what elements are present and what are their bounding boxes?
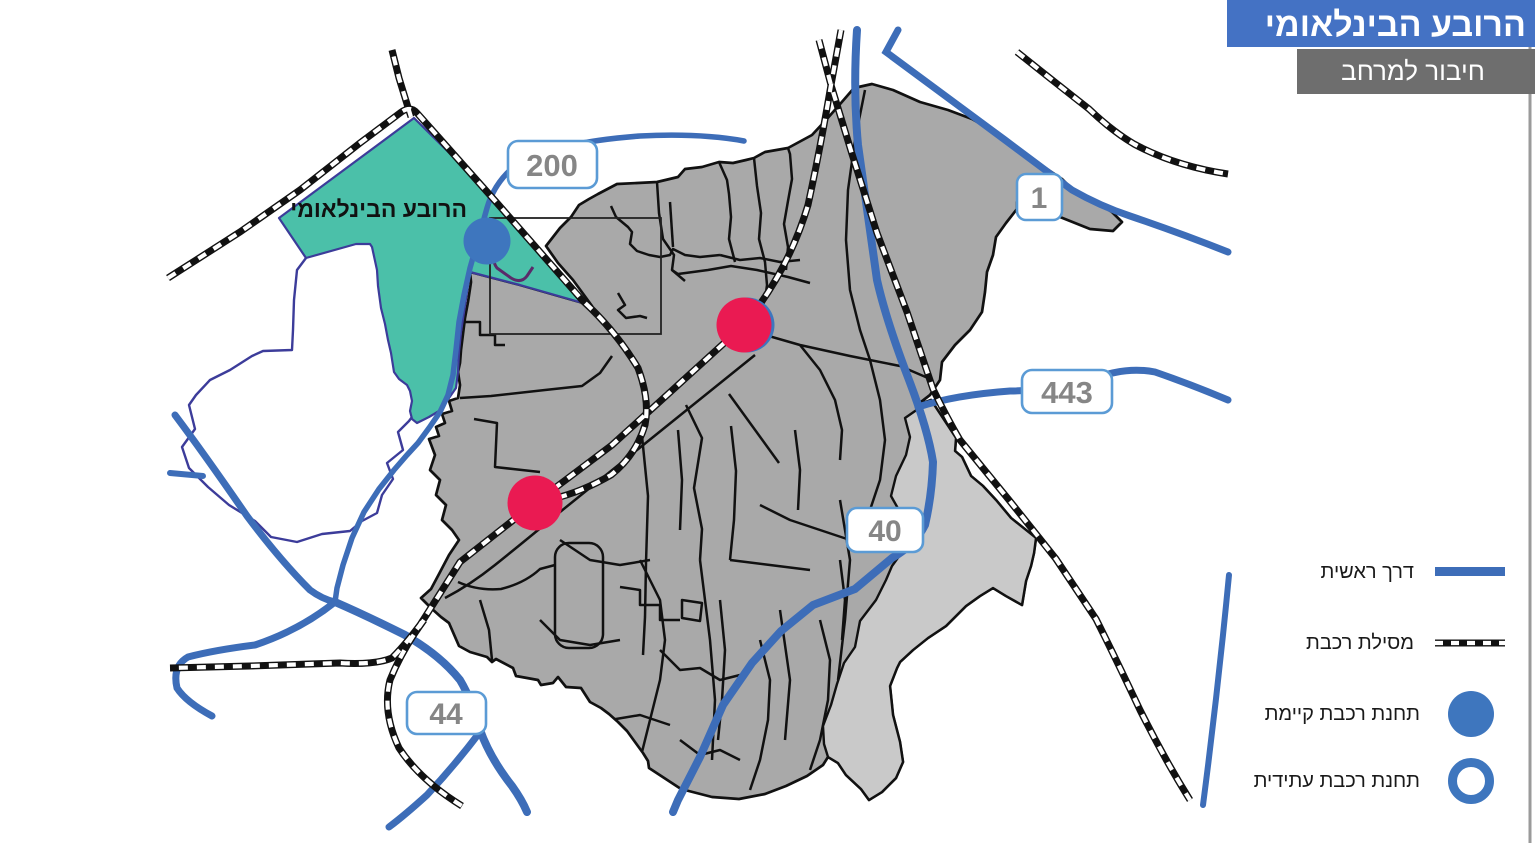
svg-text:דרך ראשית: דרך ראשית: [1321, 561, 1414, 583]
svg-text:הרובע הבינלאומי: הרובע הבינלאומי: [1265, 6, 1526, 44]
svg-text:תחנת רכבת קיימת: תחנת רכבת קיימת: [1265, 703, 1420, 725]
svg-text:תחנת רכבת עתידית: תחנת רכבת עתידית: [1254, 770, 1420, 792]
svg-text:מסילת רכבת: מסילת רכבת: [1306, 632, 1414, 654]
svg-text:443: 443: [1041, 375, 1093, 410]
svg-text:הרובע הבינלאומי: הרובע הבינלאומי: [290, 196, 467, 222]
svg-text:40: 40: [868, 515, 901, 548]
svg-text:44: 44: [429, 698, 463, 731]
svg-text:חיבור למרחב: חיבור למרחב: [1341, 56, 1485, 86]
svg-text:200: 200: [526, 148, 578, 183]
svg-text:1: 1: [1031, 182, 1048, 215]
